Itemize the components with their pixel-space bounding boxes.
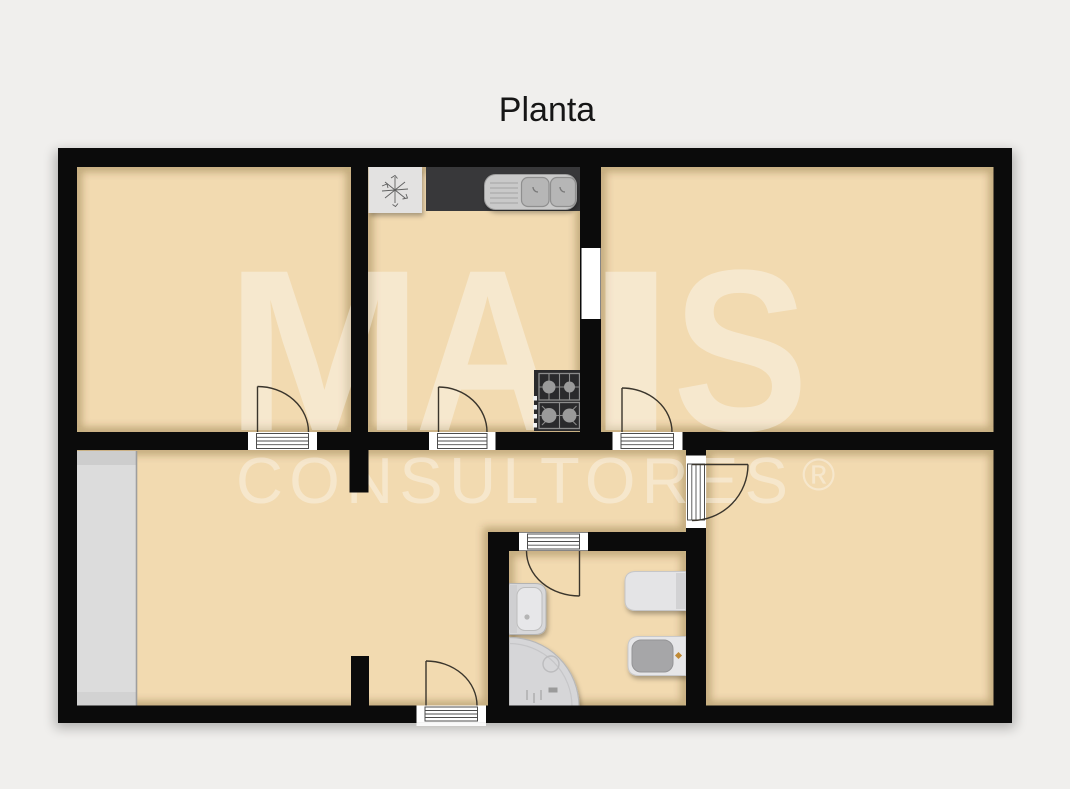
- svg-text:Planta: Planta: [499, 91, 595, 129]
- svg-text:®: ®: [802, 449, 835, 500]
